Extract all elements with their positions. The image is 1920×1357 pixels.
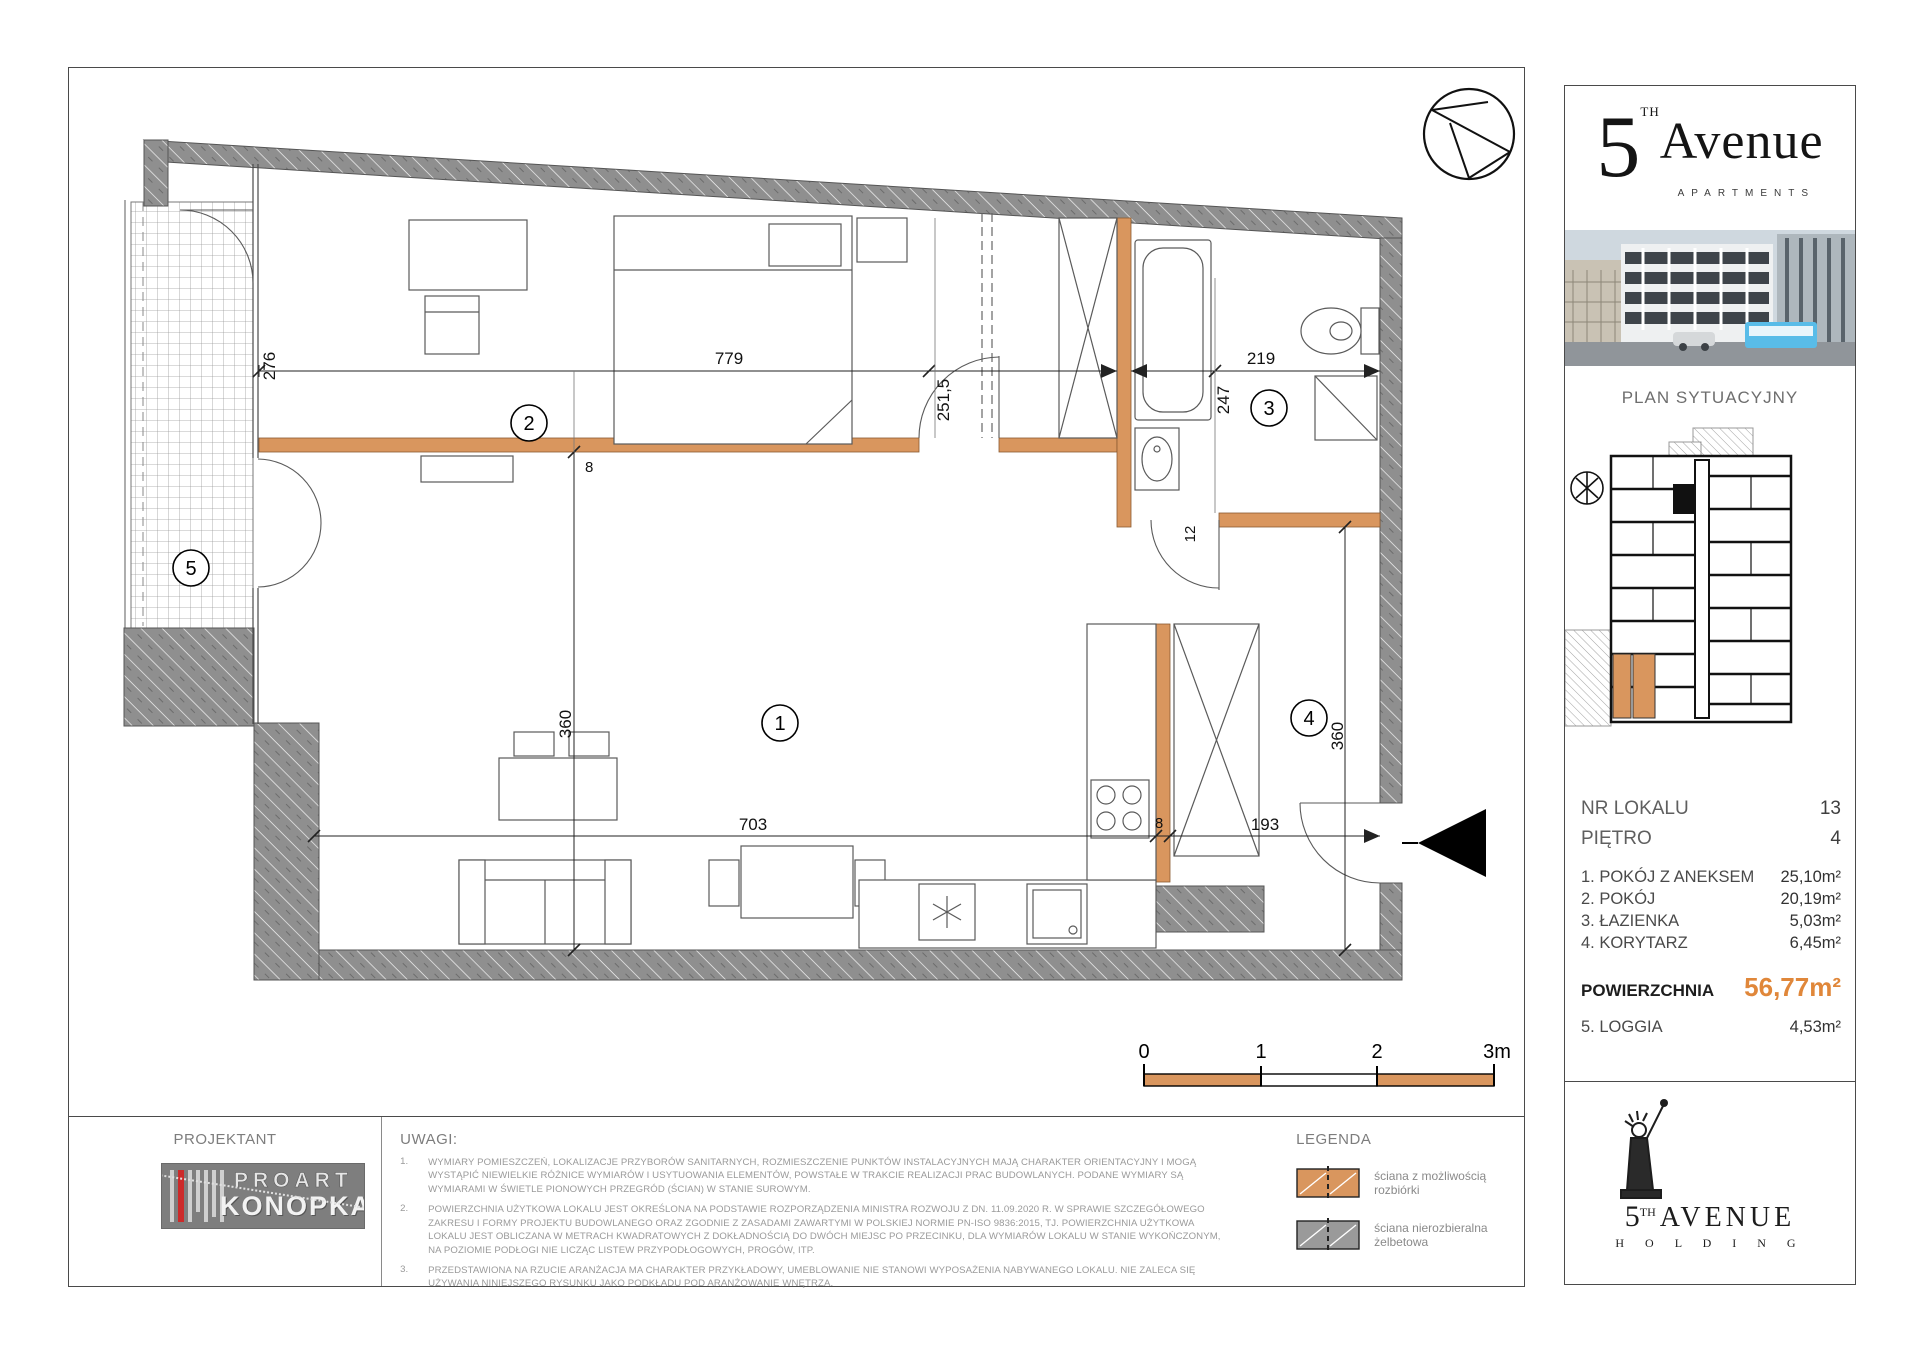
plan-svg: 276 779 251,5 247 219 8 12 360 360 703 8… — [69, 68, 1524, 1116]
holding-wordmark: 5TH AVENUE H O L D I N G — [1565, 1200, 1855, 1251]
compass-icon — [1424, 89, 1514, 179]
room-area: 5,03m² — [1790, 912, 1841, 931]
brand-logo: 5THAvenue APARTMENTS — [1565, 104, 1855, 199]
room-area-row: 2. POKÓJ 20,19m² — [1581, 890, 1841, 909]
room-circle-5: 5 — [173, 550, 209, 586]
bath-sink-icon — [1135, 428, 1179, 490]
note-number: 2. — [400, 1203, 420, 1257]
total-area-label: POWIERZCHNIA — [1581, 981, 1714, 1001]
loggia-area-row: 5. LOGGIA 4,53m² — [1581, 1018, 1841, 1037]
floor-value: 4 — [1830, 828, 1841, 850]
legend-item: ściana nierozbieralna żelbetowa — [1296, 1218, 1524, 1252]
room-area-row: 3. ŁAZIENKA 5,03m² — [1581, 912, 1841, 931]
highlighted-unit — [1613, 654, 1655, 718]
room-area-row: 1. POKÓJ Z ANEKSEM 25,10m² — [1581, 868, 1841, 887]
title-block: PROJEKTANT PROART KONOPKA UWAGI: 1. WYMI… — [69, 1116, 1524, 1286]
brand-five: 5 — [1596, 99, 1640, 196]
svg-text:2: 2 — [523, 413, 534, 435]
legend-label: ściana z możliwością rozbiórki — [1374, 1169, 1524, 1197]
dim-8a: 8 — [585, 459, 593, 476]
legend-label: ściana nierozbieralna żelbetowa — [1374, 1221, 1524, 1249]
note-number: 1. — [400, 1156, 420, 1196]
legend-swatch-gray — [1296, 1218, 1360, 1252]
note-number: 3. — [400, 1264, 420, 1291]
dim-12: 12 — [1182, 526, 1199, 543]
toilet-icon — [1301, 308, 1379, 354]
building-photo — [1565, 230, 1855, 366]
holding-five: 5 — [1625, 1200, 1640, 1233]
dim-8b: 8 — [1155, 815, 1163, 832]
holding-sup: TH — [1640, 1205, 1656, 1219]
holding-logo-box: 5TH AVENUE H O L D I N G — [1565, 1081, 1855, 1285]
nightstand-icon — [857, 218, 907, 262]
stove-icon — [1091, 780, 1149, 838]
room-name: 5. LOGGIA — [1581, 1018, 1663, 1037]
dim-276: 276 — [260, 352, 279, 380]
uwagi-title: UWAGI: — [400, 1131, 1228, 1148]
room-area: 25,10m² — [1780, 868, 1841, 887]
room-circle-2: 2 — [511, 405, 547, 441]
corridor-wardrobe-icon — [1174, 624, 1259, 856]
total-area-value: 56,77m² — [1744, 972, 1841, 1003]
note-text: PRZEDSTAWIONA NA RZUCIE ARANŻACJA MA CHA… — [428, 1264, 1228, 1291]
dim-703: 703 — [739, 815, 767, 834]
tv-cabinet-icon — [421, 456, 513, 482]
room-name: 3. ŁAZIENKA — [1581, 912, 1679, 931]
washer-icon — [1315, 376, 1377, 440]
floor-row: PIĘTRO 4 — [1581, 828, 1841, 850]
legend-section: LEGENDA ściana z możliwością rozbiórki — [1246, 1117, 1524, 1286]
bed-icon — [614, 216, 852, 444]
unit-number-row: NR LOKALU 13 — [1581, 798, 1841, 820]
dim-219: 219 — [1247, 349, 1275, 368]
note-text: POWIERZCHNIA UŻYTKOWA LOKALU JEST OKREŚL… — [428, 1203, 1228, 1257]
statue-of-liberty-icon — [1589, 1094, 1679, 1204]
total-area-row: POWIERZCHNIA 56,77m² — [1581, 972, 1841, 1003]
siteplan-map — [1565, 426, 1855, 741]
wardrobe-icon — [1059, 218, 1117, 438]
scale-3m: 3m — [1483, 1041, 1511, 1063]
room-area-row: 4. KORYTARZ 6,45m² — [1581, 934, 1841, 953]
dishwasher-icon — [1027, 884, 1087, 944]
siteplan-compass-icon — [1571, 472, 1603, 504]
bathtub-icon — [1135, 240, 1211, 420]
sofa-icon — [459, 860, 631, 944]
kitchen-sink-icon — [919, 884, 975, 940]
apartment-plan: 276 779 251,5 247 219 8 12 360 360 703 8… — [69, 68, 1524, 1116]
room-name: 2. POKÓJ — [1581, 890, 1655, 909]
siteplan-title: PLAN SYTUACYJNY — [1565, 388, 1855, 408]
room-area: 6,45m² — [1790, 934, 1841, 953]
room-area: 4,53m² — [1790, 1018, 1841, 1037]
uwagi-section: UWAGI: 1. WYMIARY POMIESZCZEŃ, LOKALIZAC… — [381, 1117, 1246, 1286]
room-area: 20,19m² — [1780, 890, 1841, 909]
scale-2: 2 — [1371, 1041, 1382, 1063]
dim-360-right: 360 — [1328, 722, 1347, 750]
floor-label: PIĘTRO — [1581, 828, 1652, 850]
scale-1: 1 — [1255, 1041, 1266, 1063]
svg-text:5: 5 — [185, 558, 196, 580]
projektant-title: PROJEKTANT — [69, 1131, 381, 1148]
dim-193: 193 — [1251, 815, 1279, 834]
legend-title: LEGENDA — [1296, 1131, 1524, 1148]
unit-number-value: 13 — [1820, 798, 1841, 820]
entrance-arrow-icon — [1402, 809, 1486, 877]
dim-247: 247 — [1214, 386, 1233, 414]
dim-779: 779 — [715, 349, 743, 368]
floor-plan-sheet: 276 779 251,5 247 219 8 12 360 360 703 8… — [0, 0, 1920, 1357]
brand-sup: TH — [1640, 104, 1659, 119]
svg-text:4: 4 — [1303, 708, 1314, 730]
room-circle-3: 3 — [1251, 390, 1287, 426]
holding-name: AVENUE — [1660, 1202, 1795, 1233]
unit-number-label: NR LOKALU — [1581, 798, 1689, 820]
uwagi-notes: 1. WYMIARY POMIESZCZEŃ, LOKALIZACJE PRZY… — [400, 1156, 1228, 1291]
room-circle-1: 1 — [762, 705, 798, 741]
drawing-frame: 276 779 251,5 247 219 8 12 360 360 703 8… — [68, 67, 1525, 1287]
title-sidebar: 5THAvenue APARTMENTS PLAN SYTUACYJNY — [1564, 85, 1856, 1285]
scale-bar: 0 1 2 3m — [1138, 1041, 1510, 1086]
svg-text:1: 1 — [774, 713, 785, 735]
legend-item: ściana z możliwością rozbiórki — [1296, 1166, 1524, 1200]
dining-table-icon — [499, 732, 617, 820]
legend-swatch-orange — [1296, 1166, 1360, 1200]
proart-konopka-logo: PROART KONOPKA — [161, 1163, 365, 1229]
room-circle-4: 4 — [1291, 700, 1327, 736]
dashed-wall — [982, 213, 992, 438]
note-text: WYMIARY POMIESZCZEŃ, LOKALIZACJE PRZYBOR… — [428, 1156, 1228, 1196]
dim-251-5: 251,5 — [934, 379, 953, 422]
scale-0: 0 — [1138, 1041, 1149, 1063]
svg-text:3: 3 — [1263, 398, 1274, 420]
desk-icon — [409, 220, 527, 354]
brand-name: Avenue — [1660, 113, 1824, 170]
dim-360-left: 360 — [556, 710, 575, 738]
room-name: 4. KORYTARZ — [1581, 934, 1688, 953]
holding-subtitle: H O L D I N G — [1565, 1236, 1855, 1251]
room-name: 1. POKÓJ Z ANEKSEM — [1581, 868, 1754, 887]
projektant-section: PROJEKTANT PROART KONOPKA — [69, 1117, 381, 1286]
